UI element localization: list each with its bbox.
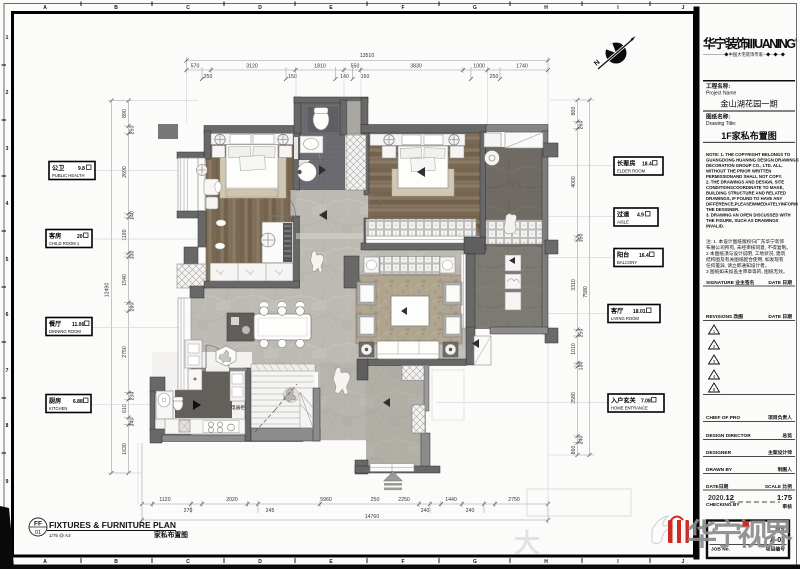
svg-text:DESIGN DIRECTOR: DESIGN DIRECTOR	[706, 433, 751, 439]
svg-text:SIGNATURE 业主签名: SIGNATURE 业主签名	[706, 279, 755, 286]
svg-text:制图人: 制图人	[778, 466, 793, 473]
svg-text:结构图及有关图纸配合使用, 如发现有: 结构图及有关图纸配合使用, 如发现有	[706, 256, 784, 263]
svg-text:2020.12: 2020.12	[708, 493, 734, 502]
svg-text:2: 2	[713, 344, 716, 349]
svg-text:4: 4	[713, 374, 716, 379]
svg-text:1F家私布置图: 1F家私布置图	[721, 130, 777, 141]
svg-text:金山湖花园一期: 金山湖花园一期	[720, 99, 777, 109]
svg-text:REVISIONS 改图: REVISIONS 改图	[706, 313, 743, 320]
svg-text:主案设计师: 主案设计师	[768, 449, 792, 456]
svg-text:PERMISSIONAND SHALL NOT COPY.: PERMISSIONAND SHALL NOT COPY.	[706, 174, 782, 179]
svg-text:布展公司所有, 未经审核同意, 不得复制。: 布展公司所有, 未经审核同意, 不得复制。	[706, 244, 791, 251]
svg-text:2. THE DRAWINGS AND DESIGN, SI: 2. THE DRAWINGS AND DESIGN, SITE	[706, 180, 784, 185]
svg-text:DATE日期: DATE日期	[706, 483, 728, 490]
svg-text:3 图纸如未加盖主审章等的, 图纸无效。: 3 图纸如未加盖主审章等的, 图纸无效。	[706, 268, 788, 275]
svg-text:GUANGDONG HUANING DESIGN DRAWI: GUANGDONG HUANING DESIGN DRAWINGS	[706, 158, 799, 163]
svg-text:注: 1. 本设计图纸版权归广东华宁装饰: 注: 1. 本设计图纸版权归广东华宁装饰	[706, 238, 784, 245]
svg-text:DATE 日期: DATE 日期	[768, 313, 792, 320]
svg-text:3. DRAWING AN OPEN DISCUSSED W: 3. DRAWING AN OPEN DISCUSSED WITH	[706, 213, 791, 218]
svg-text:DRAWINGS, IF FOUND TO HAVE ANY: DRAWINGS, IF FOUND TO HAVE ANY	[706, 196, 782, 201]
svg-text:华宁装饰ⅢUANING: 华宁装饰ⅢUANING	[703, 36, 796, 51]
svg-text:THE DESIGNER.: THE DESIGNER.	[706, 207, 739, 212]
svg-text:3: 3	[713, 359, 716, 364]
svg-text:Project Name: Project Name	[706, 91, 737, 97]
svg-text:Drawing Title:: Drawing Title:	[706, 121, 736, 127]
svg-text:图纸名称:: 图纸名称:	[706, 113, 730, 121]
svg-text:华宁视界: 华宁视界	[687, 518, 793, 552]
svg-text:NOTE: 1. THE COPYRIGHT BELONGS: NOTE: 1. THE COPYRIGHT BELONGS TO	[706, 152, 791, 157]
svg-text:5: 5	[713, 387, 716, 392]
svg-text:CHECKING BY: CHECKING BY	[706, 502, 740, 508]
svg-text:DRAWN BY: DRAWN BY	[706, 467, 733, 473]
svg-text:大: 大	[514, 528, 540, 558]
svg-text:审核: 审核	[782, 503, 792, 510]
svg-text:2 本图纸须与设计说明, 工地状况, 建筑: 2 本图纸须与设计说明, 工地状况, 建筑	[706, 250, 786, 257]
svg-text:工程名称:: 工程名称:	[706, 82, 730, 90]
svg-text:───────◆中国大宅装饰专家─◆─◆─◆: ───────◆中国大宅装饰专家─◆─◆─◆	[702, 51, 786, 58]
svg-text:1:75: 1:75	[777, 493, 792, 502]
svg-text:BUILDING STRUCTURE AND RELATED: BUILDING STRUCTURE AND RELATED	[706, 191, 786, 196]
svg-text:DECORATION GROUP CO., LTD. ALL: DECORATION GROUP CO., LTD. ALL,	[706, 163, 782, 168]
svg-text:®: ®	[794, 37, 798, 43]
svg-text:SCALE 比例: SCALE 比例	[765, 483, 792, 490]
svg-text:1: 1	[713, 329, 716, 334]
svg-text:DIFFERENCE,PLEASEIMMEDIATELYIN: DIFFERENCE,PLEASEIMMEDIATELYINFORM	[706, 202, 798, 207]
svg-text:CONDITIONSCOORDINATE TO MAKE,: CONDITIONSCOORDINATE TO MAKE,	[706, 185, 784, 190]
svg-text:INVALID.: INVALID.	[706, 224, 724, 229]
svg-text:项目负责人: 项目负责人	[768, 414, 792, 421]
svg-text:任何差异, 请立即通知设计者。: 任何差异, 请立即通知设计者。	[706, 262, 770, 269]
svg-text:THE FIGURE, SUCH AS DRAWINGS: THE FIGURE, SUCH AS DRAWINGS	[706, 218, 779, 223]
svg-text:DESIGNER: DESIGNER	[706, 450, 732, 456]
svg-text:DATE 日期: DATE 日期	[768, 279, 792, 286]
svg-text:WITHOUT THE PRIOR WRITTEN: WITHOUT THE PRIOR WRITTEN	[706, 169, 771, 174]
svg-text:CHIEF OF PRO: CHIEF OF PRO	[706, 415, 740, 421]
svg-text:总监: 总监	[782, 432, 792, 439]
